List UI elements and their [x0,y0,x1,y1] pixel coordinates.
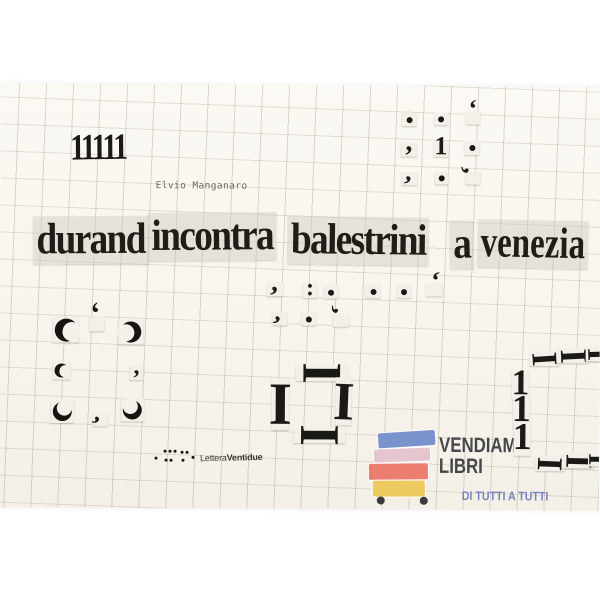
comma-glyph: , [459,166,486,177]
dot-glyph [328,289,334,295]
top-right-grid-piece [464,141,479,155]
dot-glyph [370,288,376,294]
publisher-logo-dots-piece [169,459,172,462]
right-frame-piece: 1 [514,425,531,456]
cres-glyph [49,399,75,425]
dot-glyph [181,459,184,462]
center-frame-piece: I [272,378,289,430]
comma-glyph: , [269,268,281,297]
dot-glyph [192,456,195,459]
publisher-logo-dots-piece [181,451,184,454]
comma-glyph: , [328,304,354,323]
top-right-grid-piece: , [401,143,417,157]
top-right-grid-piece: , [466,112,481,125]
top-right-grid-piece: , [465,172,480,185]
mid-row-1-piece [365,285,380,298]
top-right-grid-piece: 1 [434,141,448,157]
dot-glyph [306,316,312,322]
comma-glyph: , [470,98,477,124]
mid-row-2-piece: , [333,314,349,327]
mid-row-1-piece: : [303,284,317,298]
comma-glyph: , [89,300,104,331]
dot-glyph [406,117,412,123]
mid-row-1-piece [324,286,338,299]
left-ring-piece: , [93,413,108,426]
publisher-logo-dots-piece [169,450,172,453]
left-ring-piece [52,361,70,379]
comma-glyph: , [272,299,287,326]
book-cover-photo: 11111 Elvio Manganaro durand incontra ba… [0,0,600,600]
cres-glyph [119,397,145,423]
publisher-logo-dots-piece [164,450,167,453]
top-right-grid-piece [402,113,417,126]
dot-glyph [169,450,172,453]
cutout-collage-layer: ,,1,,,:,,,,,,IIIIIII111III [0,83,600,511]
mid-row-2-piece [302,313,316,326]
dot-glyph [169,459,172,462]
left-ring-piece [53,316,79,342]
mid-row-1-piece [397,285,411,298]
left-ring-piece: , [129,366,143,380]
dot-glyph [401,289,407,295]
right-frame-piece: I [586,346,600,361]
publisher-logo-dots-piece [181,459,184,462]
comma-glyph: , [91,400,110,426]
dot-glyph [469,145,475,151]
publisher-logo-dots-piece [164,459,167,462]
dot-glyph [164,450,167,453]
left-ring-piece [118,319,143,344]
top-right-grid-piece [435,171,449,184]
colon-glyph: : [306,276,314,300]
publisher-logo-dots-piece [192,456,195,459]
comma-glyph: , [429,270,440,297]
dot-glyph [181,451,184,454]
center-frame-piece: I [335,377,351,425]
cres-glyph [119,320,143,344]
dot-glyph [186,451,189,454]
left-ring-piece [51,400,74,423]
comma-glyph: , [403,159,416,186]
ibeam-glyph: I [584,453,600,466]
ibeam-glyph: I [332,374,355,429]
dot-glyph [439,175,445,181]
cres-glyph [52,315,80,343]
comma-glyph: , [405,128,412,156]
publisher-logo-dots-piece [186,451,189,454]
publisher-logo-dots-piece [155,457,158,460]
dot-glyph [155,457,158,460]
ibeam-glyph: I [581,347,600,361]
dot-glyph [438,116,444,122]
publisher-logo-dots-piece [174,450,177,453]
book-cover: 11111 Elvio Manganaro durand incontra ba… [0,83,600,511]
one-glyph: 1 [434,133,447,159]
mid-row-2-piece: , [272,312,287,325]
left-ring-piece: , [89,316,104,331]
mid-row-1-piece: , [426,283,442,296]
center-frame-piece: I [293,427,345,443]
dot-glyph [174,450,177,453]
one-glyph: 1 [513,418,532,456]
comma-glyph: , [133,355,139,379]
top-right-grid-piece [434,112,448,125]
dot-glyph [164,459,167,462]
mid-row-1-piece: , [267,283,283,296]
right-frame-piece: I [588,451,600,466]
left-ring-piece [121,398,144,421]
top-right-grid-piece: , [402,172,418,185]
cres-glyph [53,362,69,378]
ibeam-glyph: I [291,424,347,446]
